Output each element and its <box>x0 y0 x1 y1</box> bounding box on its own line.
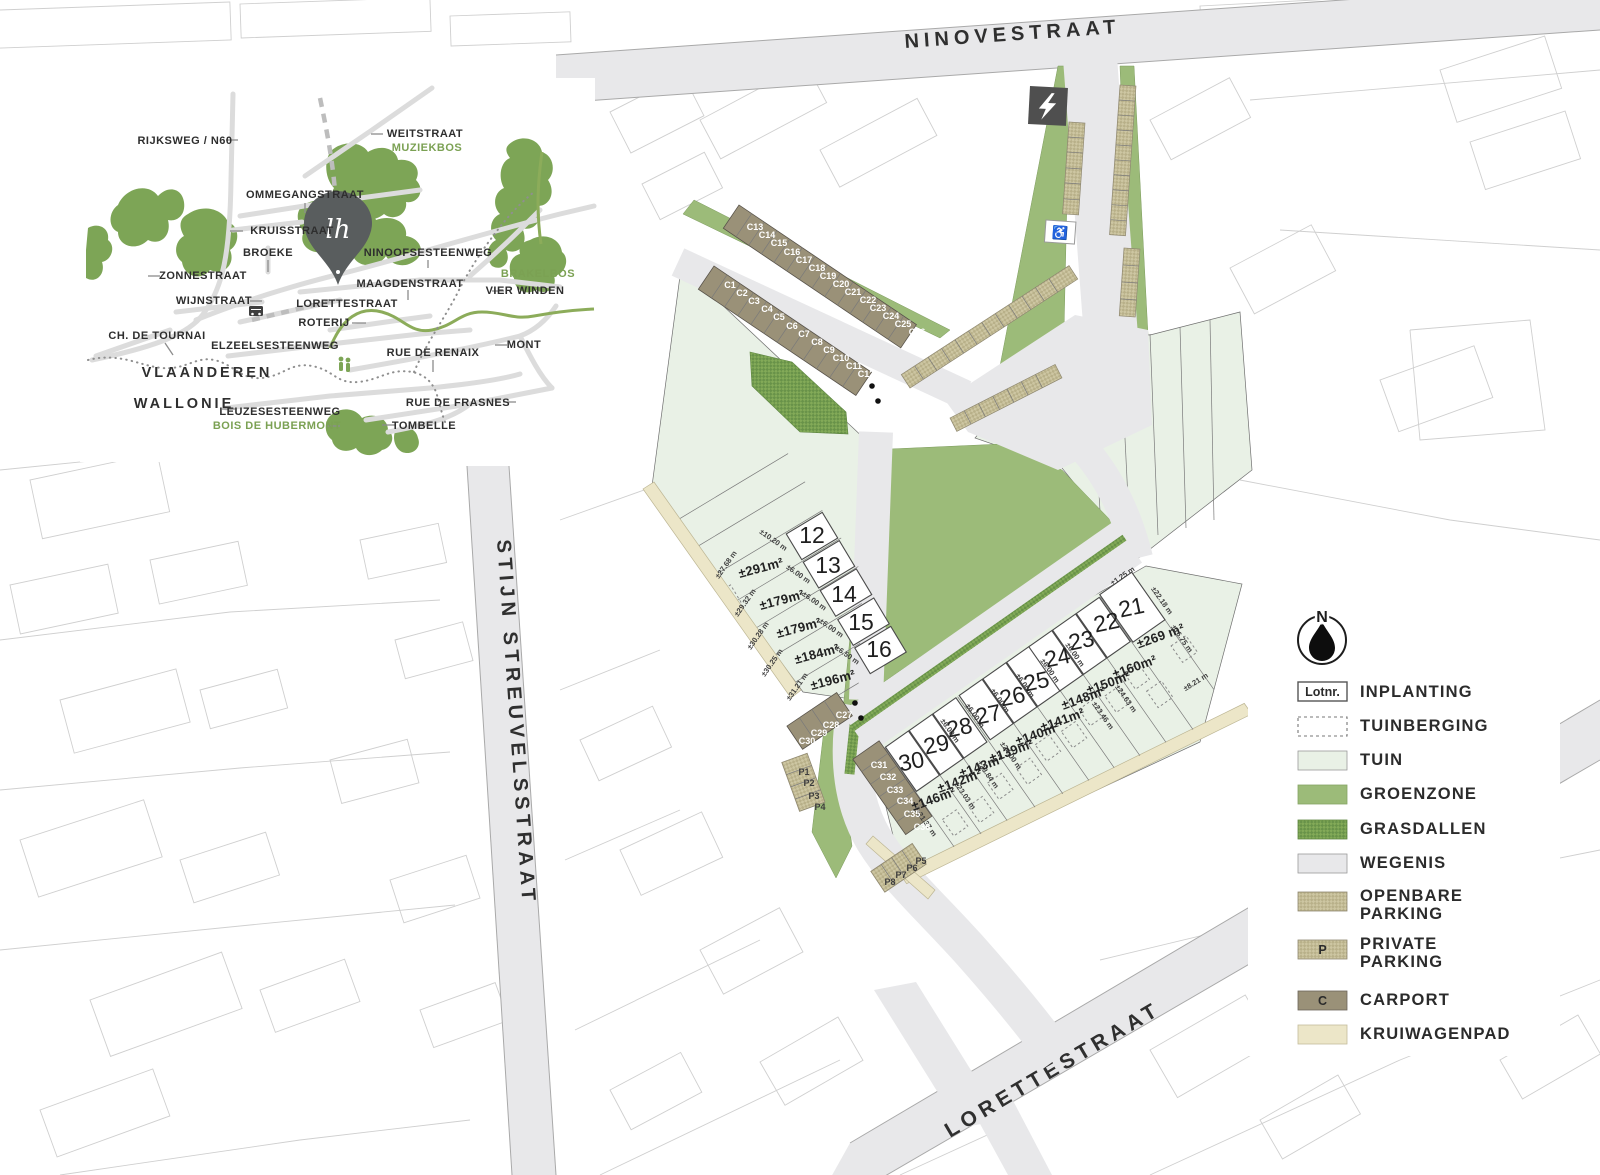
legend-swatch-text: P <box>1318 943 1326 957</box>
inset-map: lh RIJKSWEG / N60 WEITSTRAAT MUZIEKBOS O… <box>80 78 595 462</box>
carport-label: C2 <box>736 288 748 298</box>
inset-wood-label: BOIS DE HUBERMONT <box>213 420 341 432</box>
inset-street-label: ZONNESTRAAT <box>159 270 247 282</box>
carport-label: C5 <box>773 312 785 322</box>
lot-number: 22 <box>1091 607 1121 638</box>
legend-swatch-tuinberging <box>1298 717 1347 736</box>
lot-number: 16 <box>866 636 892 662</box>
parking-label: P6 <box>906 863 917 873</box>
legend-label-inplanting: INPLANTING <box>1360 683 1473 701</box>
legend-swatch-openbare-parking <box>1298 892 1347 911</box>
parking-label: P1 <box>798 767 809 777</box>
legend-label-private-2: PARKING <box>1360 953 1443 971</box>
carport-label: C33 <box>887 785 904 795</box>
carport-label: C36 <box>914 822 931 832</box>
inset-street-label: LEUZESESTEENWEG <box>219 406 340 418</box>
carport-label: C4 <box>761 304 773 314</box>
inset-street-label: MAAGDENSTRAAT <box>356 278 463 290</box>
carport-label: C3 <box>748 296 760 306</box>
legend-swatch-tuin <box>1298 751 1347 770</box>
legend-label-grasdallen: GRASDALLEN <box>1360 820 1487 838</box>
legend-label-groenzone: GROENZONE <box>1360 785 1477 803</box>
lot-number: 13 <box>815 552 841 578</box>
inset-street-label: LORETTESTRAAT <box>296 298 398 310</box>
inset-street-label: NINOOFSESTEENWEG <box>364 247 492 259</box>
carport-label: C26 <box>909 327 926 337</box>
wheelchair-icon: ♿ <box>1052 224 1069 240</box>
inset-street-label: ELZEELSESTEENWEG <box>211 340 339 352</box>
parking-label: P8 <box>884 877 895 887</box>
accessible-parking-space: ♿ <box>1044 220 1075 244</box>
carport-label: C1 <box>724 280 736 290</box>
legend-swatch-wegenis <box>1298 854 1347 873</box>
legend-swatch-text: C <box>1318 994 1327 1008</box>
lot-number: 15 <box>848 609 874 635</box>
lot-number: 12 <box>799 522 825 548</box>
inset-street-label: ROTERIJ <box>298 317 349 329</box>
legend-swatch-kruiwagenpad <box>1298 1025 1347 1044</box>
lot-number: 14 <box>831 581 857 607</box>
legend-background <box>1248 578 1560 1056</box>
lot-number: 30 <box>896 746 926 777</box>
legend-label-wegenis: WEGENIS <box>1360 854 1446 872</box>
legend-label-carport: CARPORT <box>1360 991 1450 1009</box>
inset-street-label: VIER WINDEN <box>486 285 565 297</box>
legend-swatch-grasdallen <box>1298 820 1347 839</box>
entrance-road <box>1090 58 1112 350</box>
inset-street-label: BROEKE <box>243 247 293 259</box>
legend-label-tuinberging: TUINBERGING <box>1360 717 1489 735</box>
parking-label: P3 <box>808 791 819 801</box>
legend-label-kruiwagenpad: KRUIWAGENPAD <box>1360 1025 1511 1043</box>
inset-street-label: CH. DE TOURNAI <box>108 330 205 342</box>
carport-label: C8 <box>811 337 823 347</box>
parking-label: P4 <box>814 802 825 812</box>
parking-label: P7 <box>895 870 906 880</box>
carport-label: C7 <box>798 329 810 339</box>
parking-label: P2 <box>803 778 814 788</box>
train-station-icon <box>249 306 263 316</box>
inset-region-label: VLAANDEREN <box>142 365 273 381</box>
carport-label: C32 <box>880 772 897 782</box>
carport-label: C30 <box>799 736 816 746</box>
inset-street-label: OMMEGANGSTRAAT <box>246 189 364 201</box>
site-plan-svg: NINOVESTRAAT STIJN STREUVELSSTRAAT LORET… <box>0 0 1600 1175</box>
north-label: N <box>1316 609 1328 626</box>
legend-label-openbare-2: PARKING <box>1360 905 1443 923</box>
inset-street-label: WIJNSTRAAT <box>176 295 252 307</box>
carport-label: C31 <box>871 760 888 770</box>
carport-label: C12 <box>858 369 875 379</box>
inset-street-label: WEITSTRAAT <box>387 128 463 140</box>
inset-street-label: RUE DE FRASNES <box>406 397 510 409</box>
electricity-cabinet <box>1028 86 1068 126</box>
inset-wood-label: BRAKELBOS <box>501 268 575 280</box>
legend-swatch-groenzone <box>1298 785 1347 804</box>
inset-street-label: KRUISSTRAAT <box>250 225 334 237</box>
inset-street-label: RIJKSWEG / N60 <box>137 135 232 147</box>
carport-label: C6 <box>786 321 798 331</box>
inset-street-label: MONT <box>507 339 541 351</box>
carport-label: C35 <box>904 809 921 819</box>
legend-label-private: PRIVATE <box>1360 935 1437 953</box>
site-plan: NINOVESTRAAT STIJN STREUVELSSTRAAT LORET… <box>0 0 1600 1175</box>
inset-wood-label: MUZIEKBOS <box>392 142 463 154</box>
legend-label-openbare: OPENBARE <box>1360 887 1463 905</box>
inset-street-label: TOMBELLE <box>392 420 456 432</box>
carport-label: C34 <box>897 796 914 806</box>
carport-label: C27 <box>836 710 853 720</box>
lot-number: 21 <box>1116 592 1146 623</box>
legend: N Lotnr. INPLANTING TUINBERGING TUIN GRO… <box>1248 578 1560 1056</box>
legend-swatch-text: Lotnr. <box>1305 685 1340 699</box>
inset-street-label: RUE DE RENAIX <box>387 347 480 359</box>
legend-label-tuin: TUIN <box>1360 751 1403 769</box>
